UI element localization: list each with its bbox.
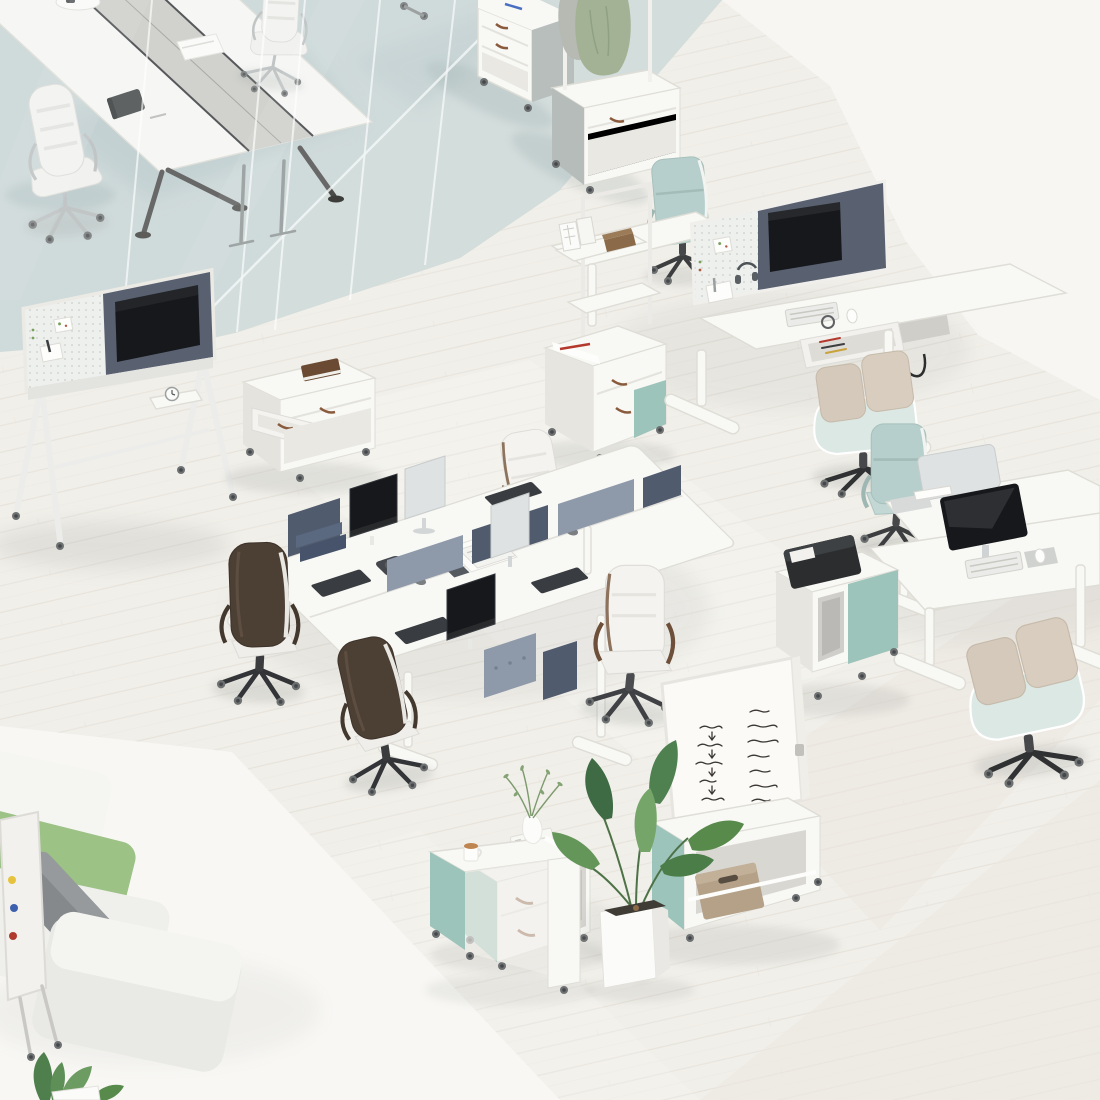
pegboard-tray: [40, 343, 63, 362]
planter: [600, 902, 656, 988]
office-scene: [0, 0, 1100, 1100]
pegboard-card: [54, 317, 73, 333]
magnet-yellow: [8, 876, 16, 884]
magnet-red: [9, 932, 17, 940]
green-coat: [575, 0, 631, 76]
teal-panel: [848, 570, 898, 664]
magnet-blue: [10, 904, 18, 912]
